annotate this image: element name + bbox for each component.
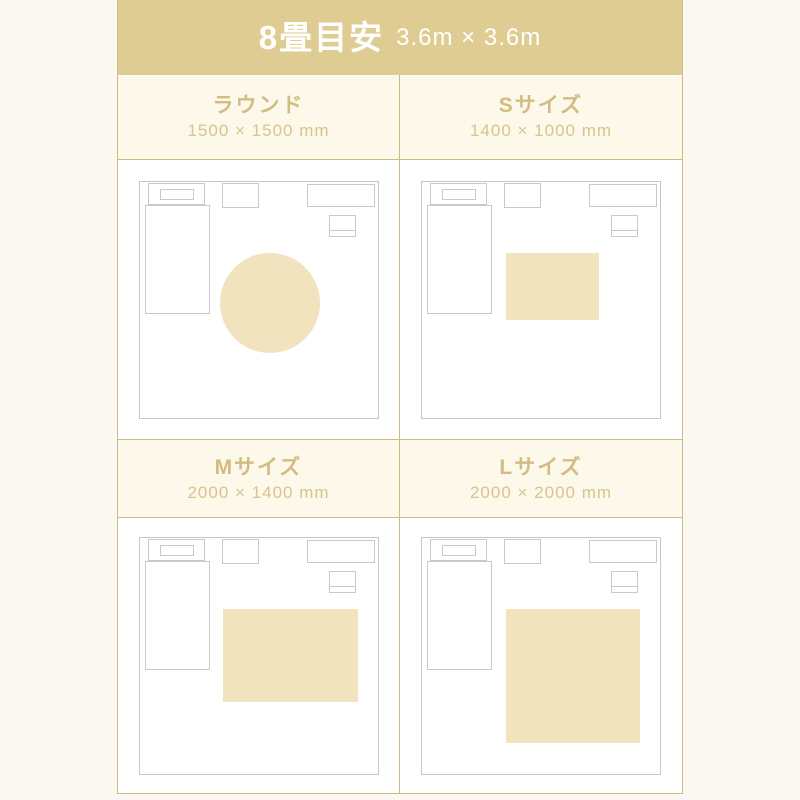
bed-body bbox=[427, 561, 492, 670]
bed-headboard bbox=[430, 183, 487, 205]
bed-body bbox=[427, 205, 492, 314]
dresser bbox=[589, 184, 657, 207]
room-diagram-round bbox=[118, 160, 399, 439]
rug-round bbox=[220, 253, 320, 353]
pillow bbox=[160, 189, 194, 200]
bed-headboard bbox=[430, 539, 487, 561]
size-grid: ラウンド 1500 × 1500 mm bbox=[118, 75, 682, 793]
nightstand bbox=[611, 215, 638, 237]
quadrant-m-size: Mサイズ 2000 × 1400 mm bbox=[118, 439, 400, 793]
rug-size-label: 2000 × 1400 mm bbox=[187, 484, 329, 501]
pillow bbox=[442, 189, 476, 200]
room-diagram-m bbox=[118, 518, 399, 793]
room-outline bbox=[139, 181, 379, 419]
rug-size-label: 1500 × 1500 mm bbox=[187, 122, 329, 139]
nightstand-line bbox=[330, 230, 355, 231]
pillow bbox=[160, 545, 194, 556]
bed-headboard bbox=[148, 183, 205, 205]
bed-body bbox=[145, 205, 210, 314]
dresser bbox=[307, 540, 375, 563]
quadrant-header-l: Lサイズ 2000 × 2000 mm bbox=[400, 439, 682, 518]
dresser bbox=[307, 184, 375, 207]
size-guide-panel: 8畳目安 3.6m × 3.6m ラウンド 1500 × 1500 mm bbox=[117, 0, 683, 794]
quadrant-s-size: Sサイズ 1400 × 1000 mm bbox=[400, 75, 682, 439]
rug-s bbox=[506, 253, 599, 320]
nightstand bbox=[611, 571, 638, 593]
nightstand-line bbox=[612, 586, 637, 587]
pillow bbox=[442, 545, 476, 556]
bed-headboard bbox=[148, 539, 205, 561]
title-band: 8畳目安 3.6m × 3.6m bbox=[118, 0, 682, 75]
nightstand-line bbox=[330, 586, 355, 587]
nightstand bbox=[329, 215, 356, 237]
rug-type-label: Lサイズ bbox=[499, 457, 582, 478]
room-outline bbox=[139, 537, 379, 775]
room-diagram-s bbox=[400, 160, 682, 439]
quadrant-header-s: Sサイズ 1400 × 1000 mm bbox=[400, 75, 682, 160]
rug-size-label: 2000 × 2000 mm bbox=[470, 484, 612, 501]
nightstand-line bbox=[612, 230, 637, 231]
desk bbox=[222, 539, 259, 564]
room-diagram-l bbox=[400, 518, 682, 793]
room-outline bbox=[421, 181, 661, 419]
quadrant-round: ラウンド 1500 × 1500 mm bbox=[118, 75, 400, 439]
room-outline bbox=[421, 537, 661, 775]
rug-m bbox=[223, 609, 358, 702]
rug-type-label: Mサイズ bbox=[215, 457, 303, 478]
bed-body bbox=[145, 561, 210, 670]
nightstand bbox=[329, 571, 356, 593]
page-title: 8畳目安 bbox=[259, 21, 384, 54]
room-dimensions-label: 3.6m × 3.6m bbox=[396, 26, 541, 50]
quadrant-header-round: ラウンド 1500 × 1500 mm bbox=[118, 75, 399, 160]
desk bbox=[222, 183, 259, 208]
rug-size-label: 1400 × 1000 mm bbox=[470, 122, 612, 139]
desk bbox=[504, 183, 541, 208]
quadrant-header-m: Mサイズ 2000 × 1400 mm bbox=[118, 439, 399, 518]
quadrant-l-size: Lサイズ 2000 × 2000 mm bbox=[400, 439, 682, 793]
rug-type-label: ラウンド bbox=[213, 95, 305, 116]
desk bbox=[504, 539, 541, 564]
rug-l bbox=[506, 609, 640, 743]
dresser bbox=[589, 540, 657, 563]
rug-type-label: Sサイズ bbox=[499, 95, 583, 116]
